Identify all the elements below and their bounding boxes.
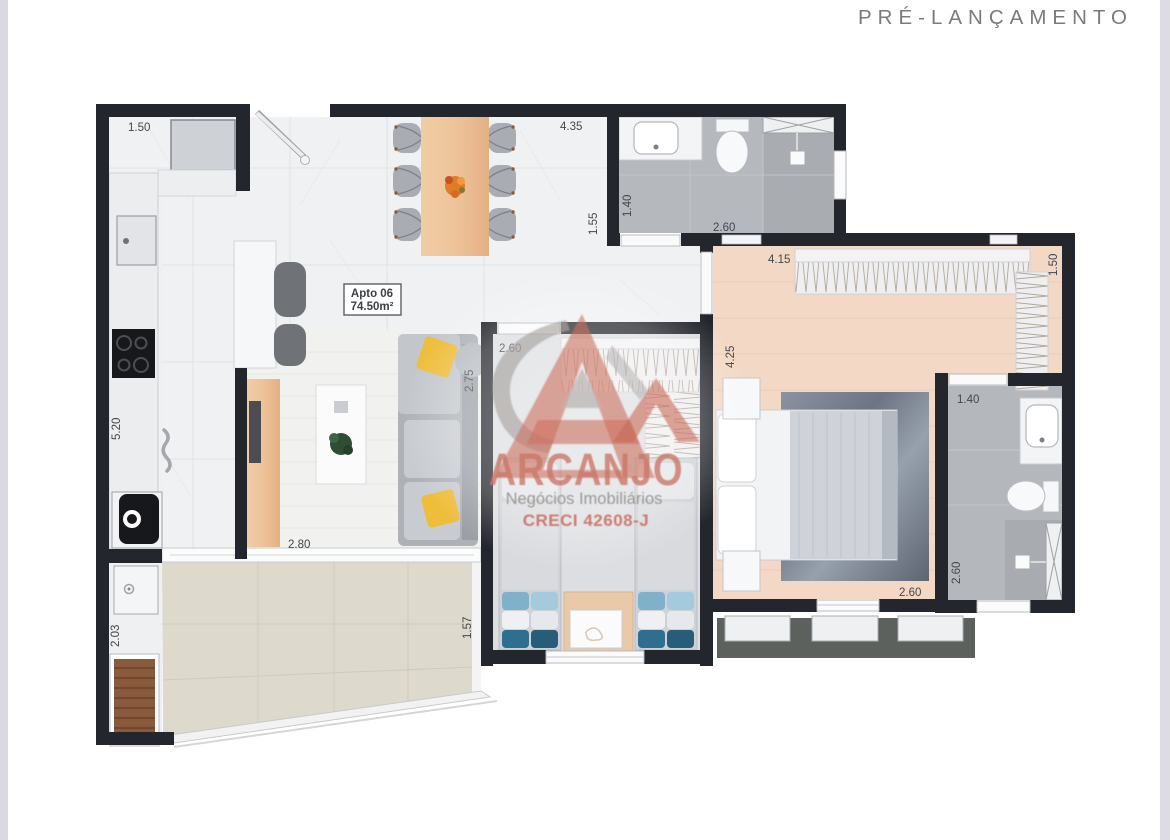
svg-text:CRECI 42608-J: CRECI 42608-J	[523, 511, 650, 530]
svg-text:5.20: 5.20	[111, 418, 123, 440]
svg-text:Apto 06: Apto 06	[351, 288, 393, 300]
svg-text:2.60: 2.60	[951, 562, 963, 584]
svg-text:4.35: 4.35	[560, 121, 582, 133]
svg-text:1.50: 1.50	[128, 122, 150, 134]
svg-text:2.03: 2.03	[110, 625, 122, 647]
svg-text:1.40: 1.40	[957, 394, 979, 406]
svg-text:2.80: 2.80	[288, 539, 310, 551]
svg-text:PRÉ-LANÇAMENTO: PRÉ-LANÇAMENTO	[858, 6, 1133, 29]
svg-text:74.50m²: 74.50m²	[351, 301, 394, 313]
svg-text:Negócios Imobiliários: Negócios Imobiliários	[506, 490, 663, 508]
svg-text:2.60: 2.60	[899, 587, 921, 599]
svg-text:1.40: 1.40	[622, 195, 634, 217]
svg-text:1.50: 1.50	[1048, 254, 1060, 276]
svg-text:1.57: 1.57	[462, 617, 474, 639]
svg-text:2.60: 2.60	[713, 222, 735, 234]
svg-text:1.55: 1.55	[588, 213, 600, 235]
svg-text:4.15: 4.15	[768, 254, 790, 266]
svg-text:ARCANJO: ARCANJO	[488, 444, 683, 495]
